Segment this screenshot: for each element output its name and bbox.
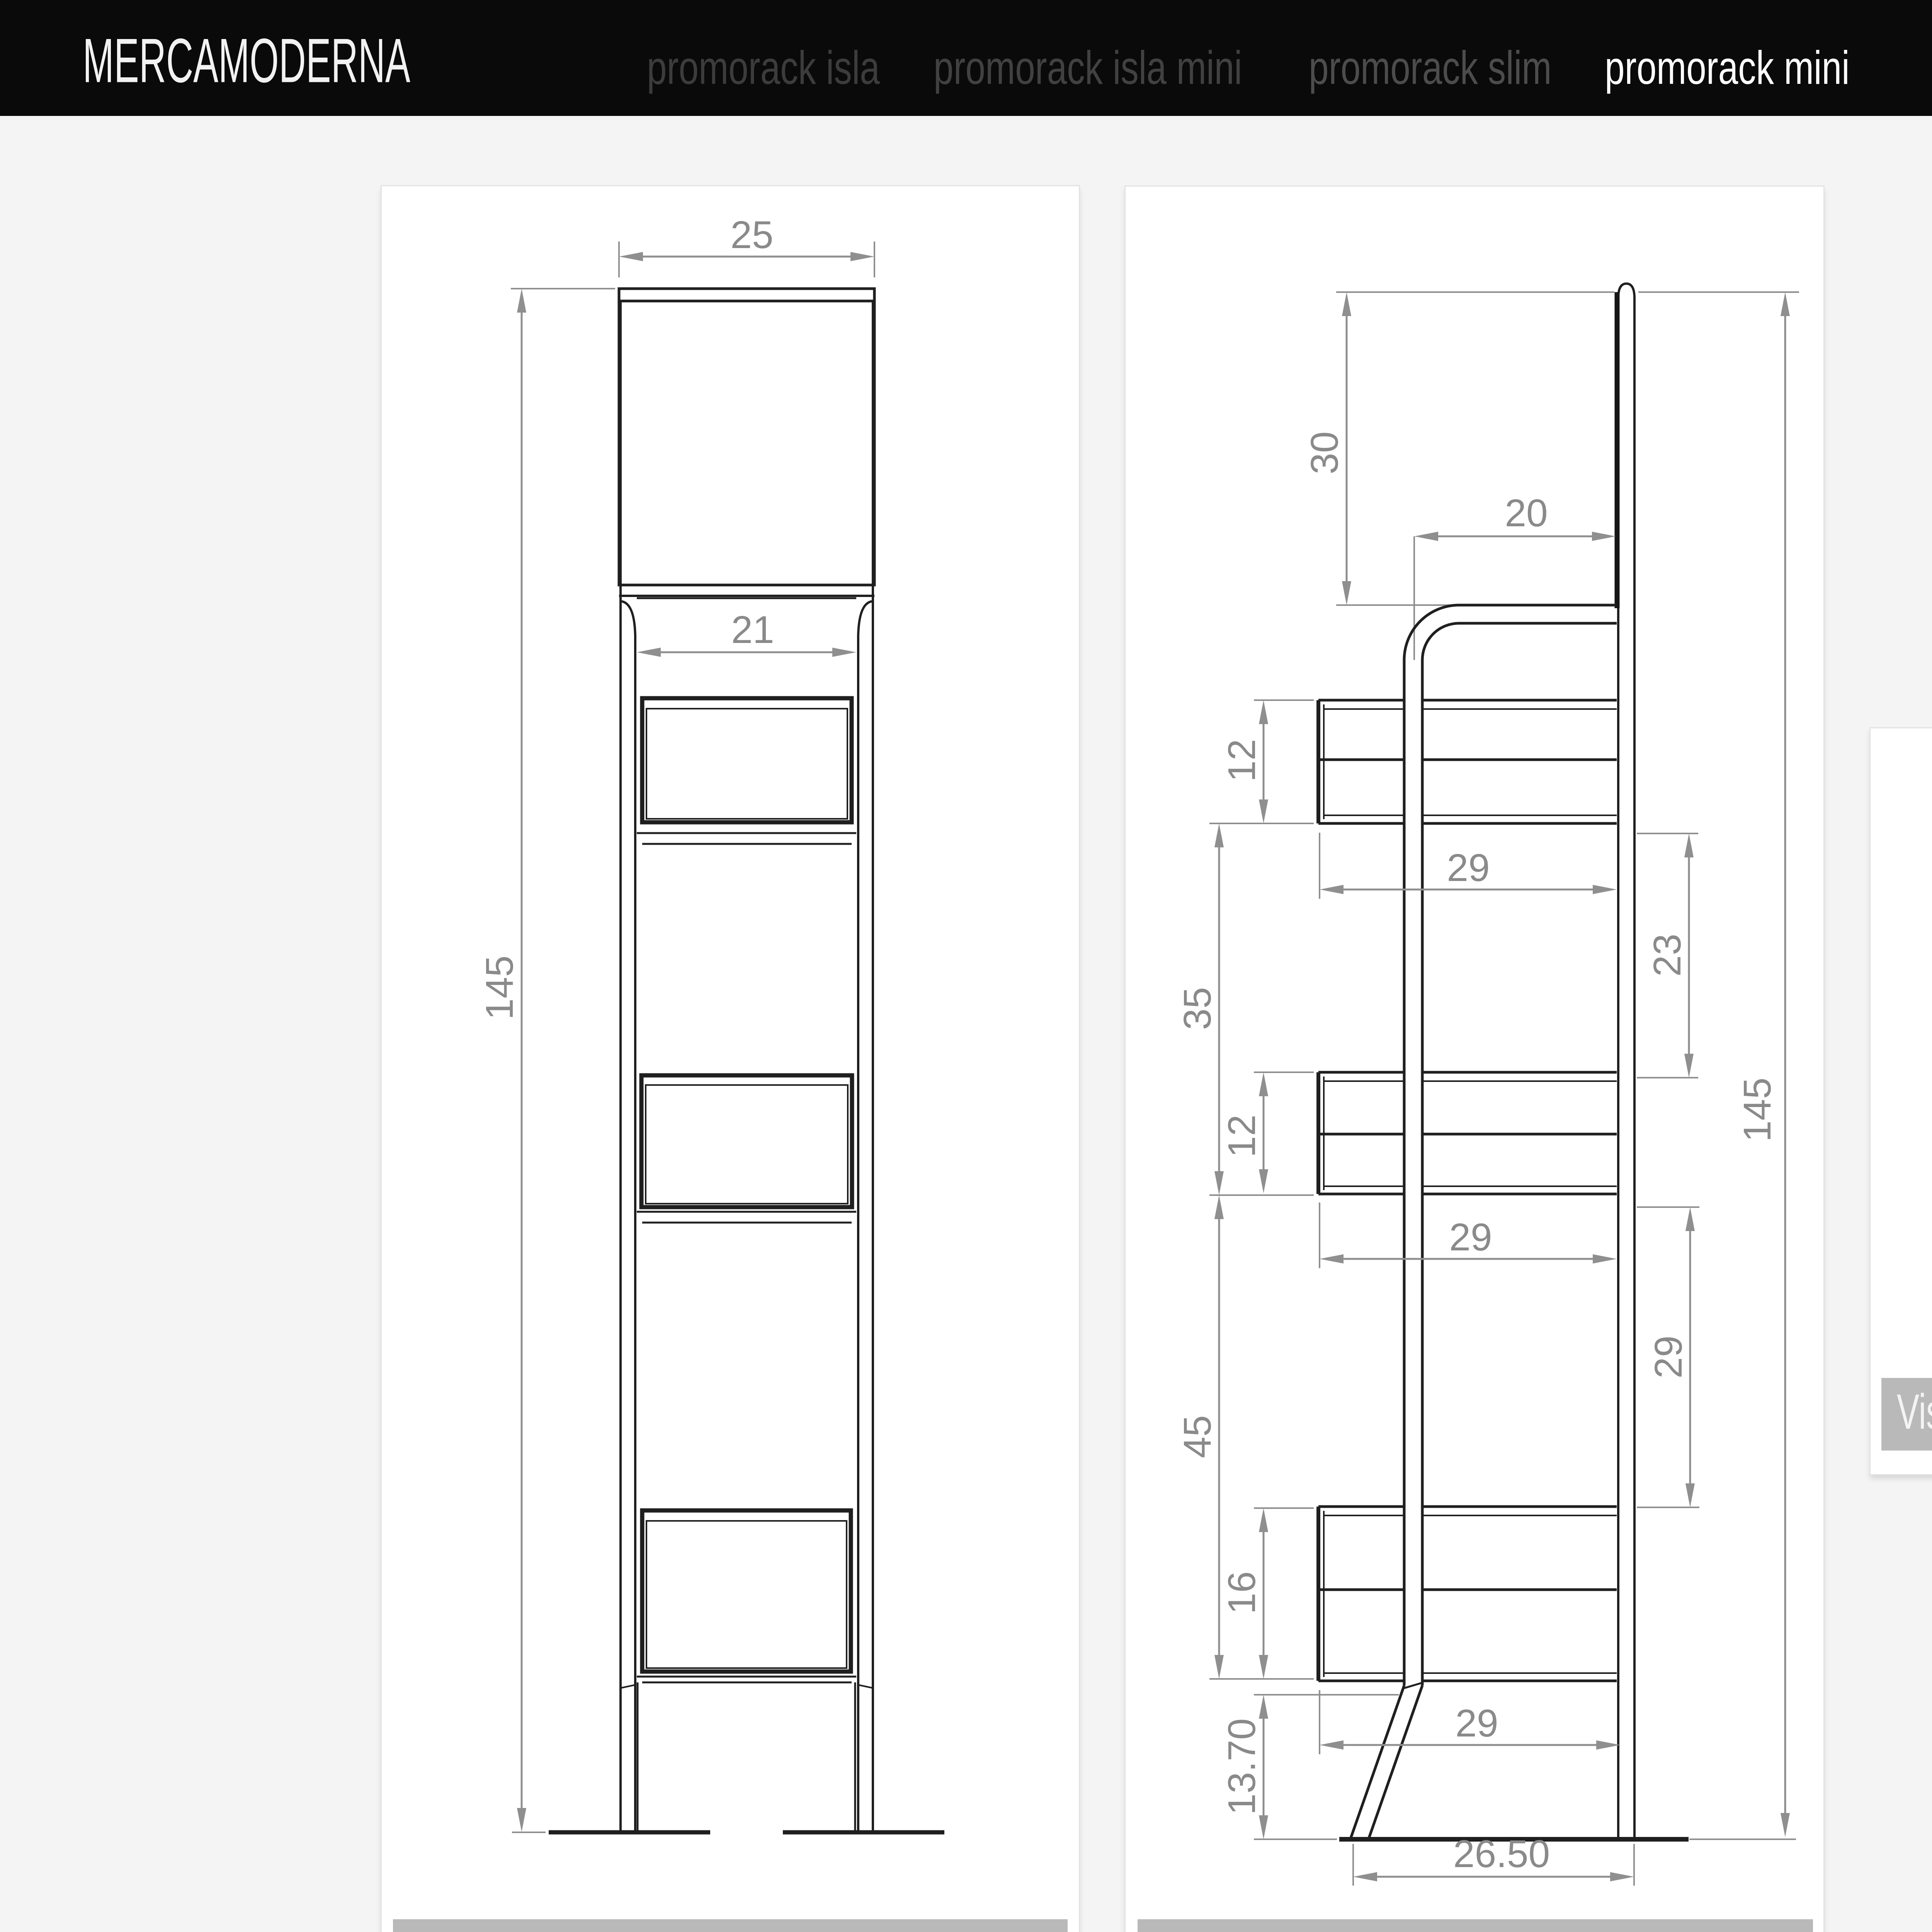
svg-text:20: 20: [1505, 492, 1548, 535]
svg-text:12: 12: [1220, 1114, 1264, 1157]
svg-text:12: 12: [1220, 739, 1264, 782]
svg-text:145: 145: [478, 956, 521, 1020]
svg-text:145: 145: [1736, 1078, 1779, 1142]
svg-text:23: 23: [1646, 934, 1689, 976]
svg-text:29: 29: [1449, 1216, 1492, 1259]
svg-text:21: 21: [731, 608, 774, 651]
svg-text:29: 29: [1447, 846, 1490, 889]
svg-text:29: 29: [1455, 1702, 1498, 1745]
svg-text:29: 29: [1647, 1335, 1690, 1378]
svg-text:45: 45: [1176, 1415, 1219, 1458]
svg-text:25: 25: [730, 213, 773, 257]
svg-text:16: 16: [1220, 1571, 1264, 1614]
svg-text:26.50: 26.50: [1453, 1832, 1550, 1876]
svg-text:30: 30: [1303, 431, 1346, 474]
svg-text:35: 35: [1176, 987, 1219, 1030]
svg-text:13.70: 13.70: [1220, 1718, 1264, 1815]
